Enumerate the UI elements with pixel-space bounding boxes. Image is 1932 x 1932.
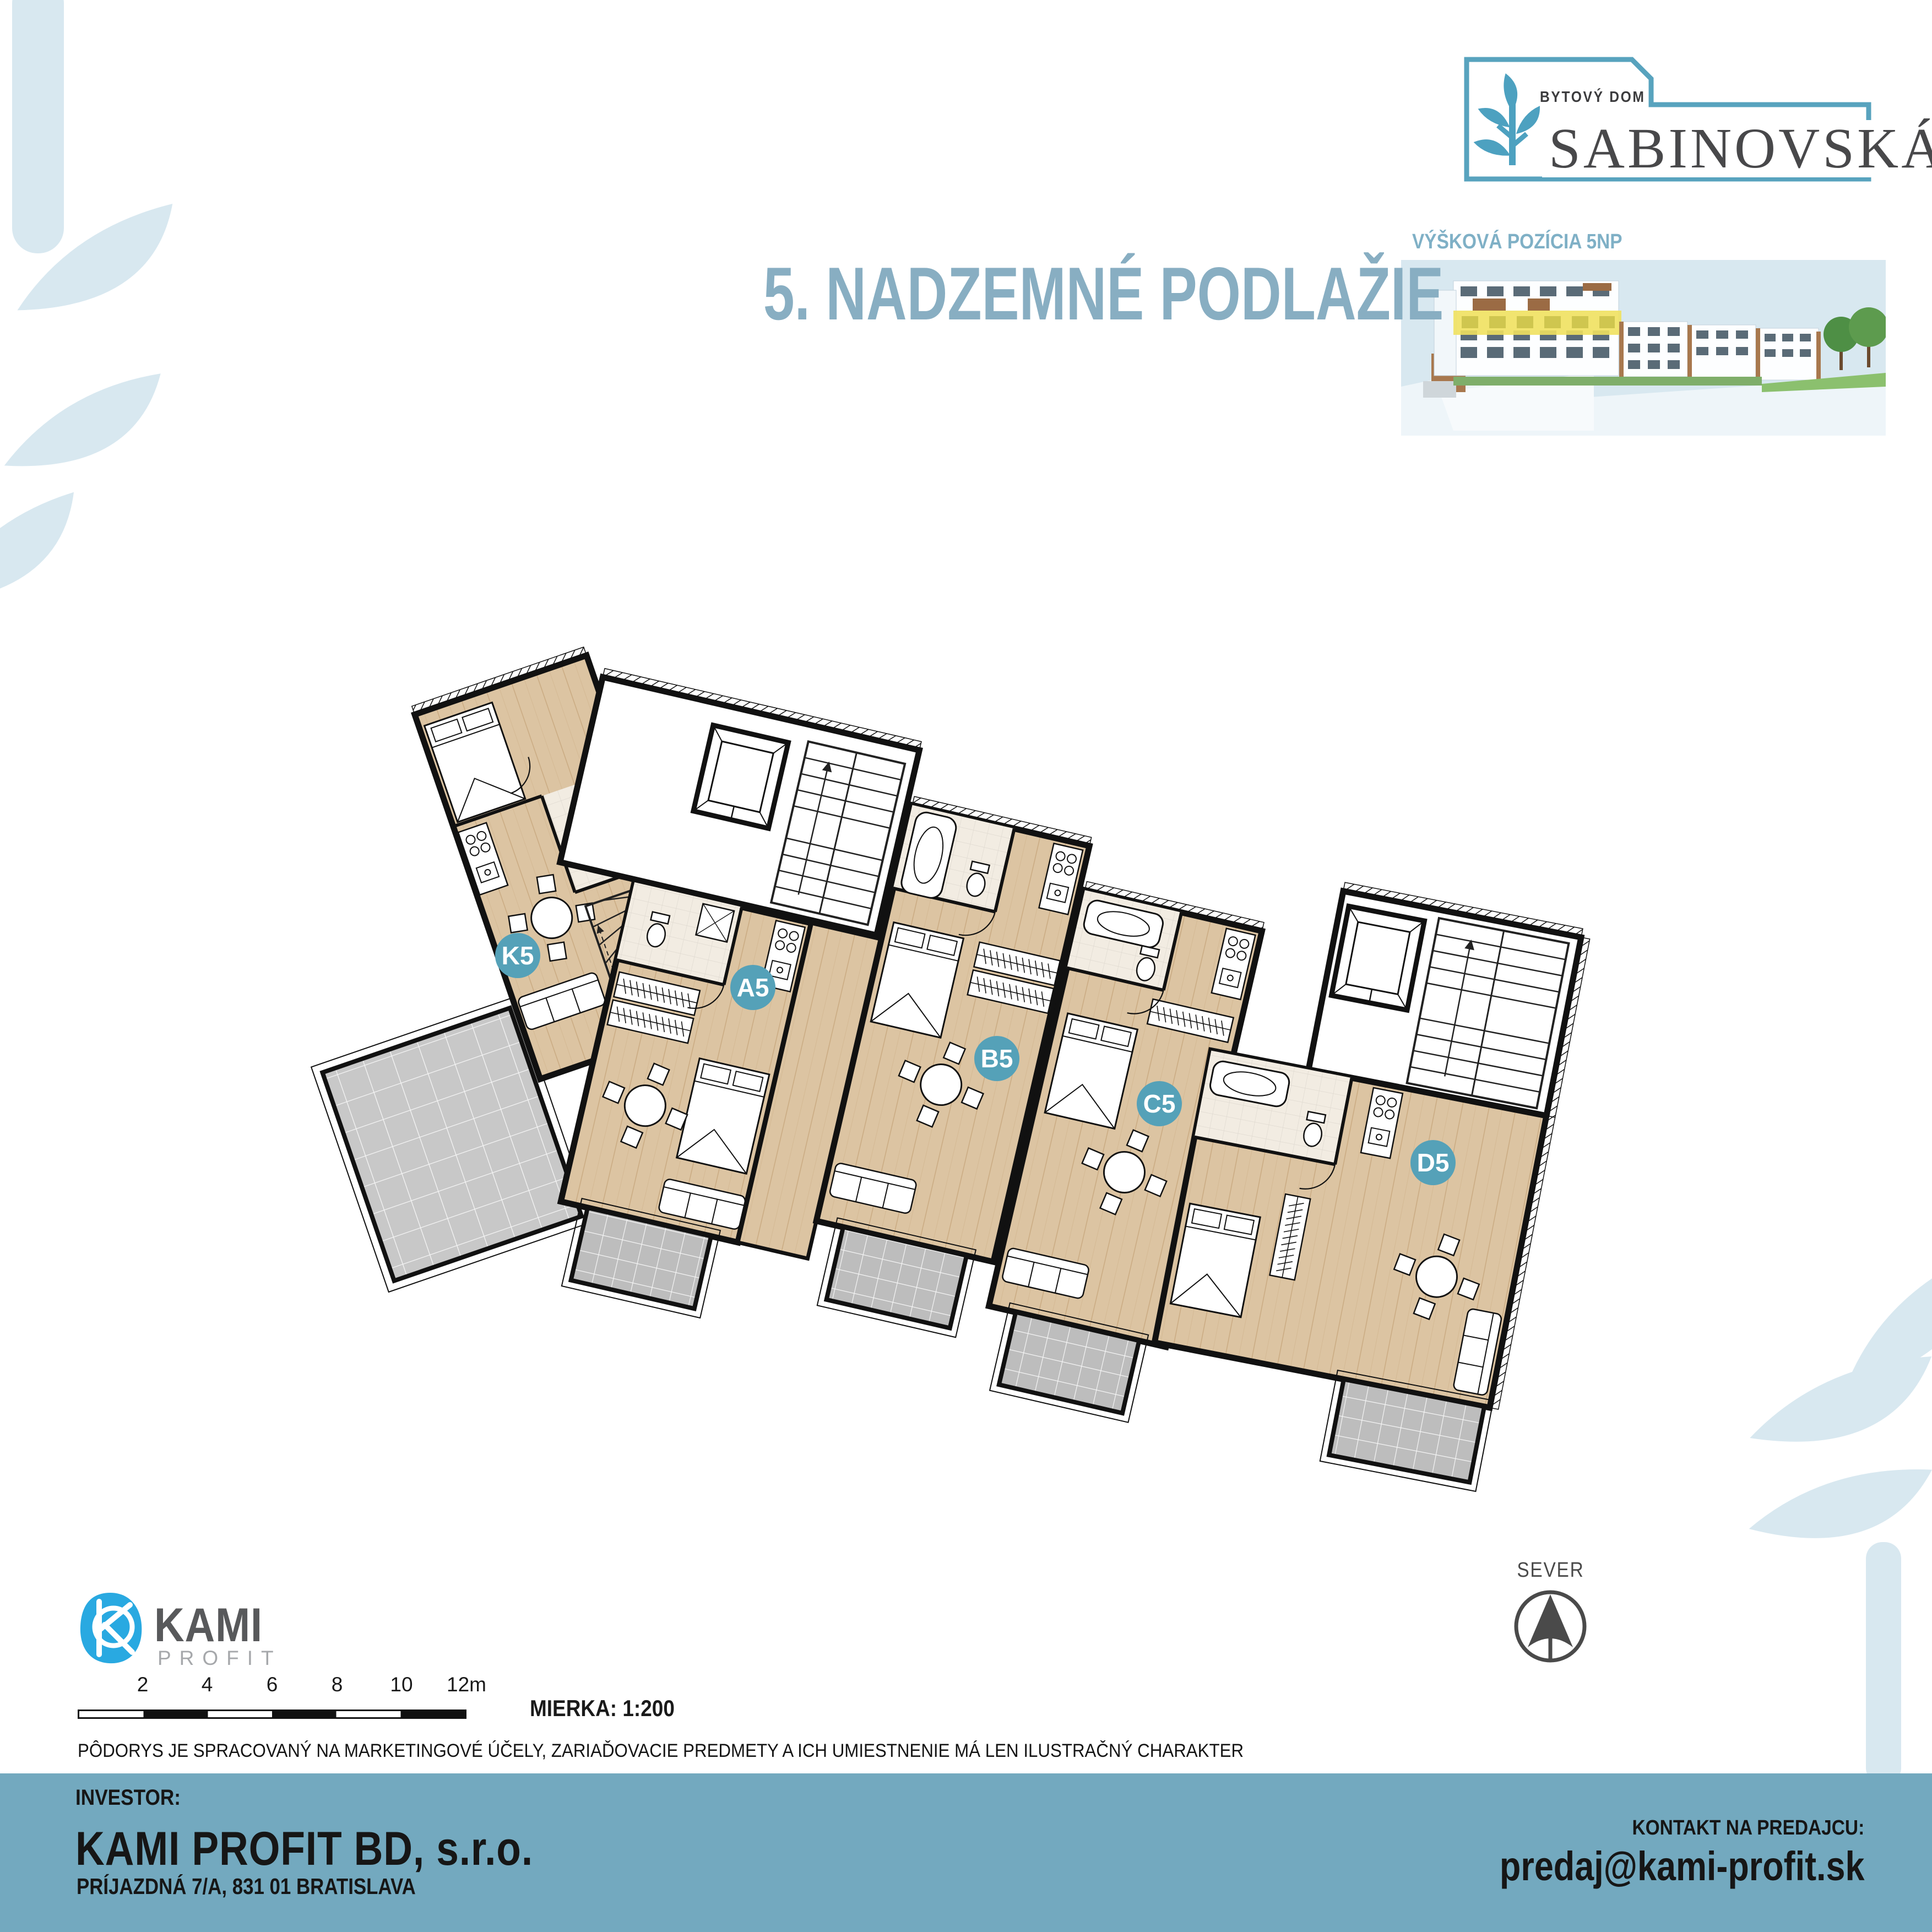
contact-email[interactable]: predaj@kami-profit.sk [1435,1843,1864,1890]
scale-tick: 8 [312,1673,362,1696]
scale-label-text: MIERKA: 1:200 [530,1695,675,1722]
north-label-text: SEVER [1517,1559,1584,1582]
scale-tick: 10 [377,1673,426,1696]
apartment-badge-b5[interactable]: B5 [974,1036,1019,1081]
investor-label: INVESTOR: [75,1786,195,1810]
disclaimer: PÔDORYS JE SPRACOVANÝ NA MARKETINGOVÉ ÚČ… [78,1740,1345,1762]
scale-tick: 4 [182,1673,232,1696]
apartment-badge-k5-label: K5 [502,941,534,970]
footer-bar: INVESTOR: KAMI PROFIT BD, s.r.o. PRÍJAZD… [0,1773,1932,1932]
elevator-icon [693,725,788,828]
investor-address: PRÍJAZDNÁ 7/A, 831 01 BRATISLAVA [77,1874,476,1900]
elevator-icon [1331,906,1424,1010]
apartment-badge-k5[interactable]: K5 [495,933,540,978]
vendor-name: KAMI [154,1598,278,1653]
kami-profit-icon [76,1591,148,1668]
contact-label: KONTAKT NA PREDAJCU: [1600,1816,1864,1840]
scale-label: MIERKA: 1:200 [530,1695,694,1722]
scale-tick: 6 [247,1673,297,1696]
apartment-badge-a5-label: A5 [737,973,769,1002]
scale-bar-segments [78,1710,466,1719]
vendor-logo: KAMI PROFIT [76,1591,384,1679]
investor-name-text: KAMI PROFIT BD, s.r.o. [75,1822,533,1876]
disclaimer-text: PÔDORYS JE SPRACOVANÝ NA MARKETINGOVÉ ÚČ… [78,1740,1244,1762]
scale-tick: 2 [118,1673,167,1696]
apartment-badge-c5[interactable]: C5 [1137,1081,1182,1126]
apartment-unit-d5 [1138,1051,1555,1493]
contact-email-text: predaj@kami-profit.sk [1499,1843,1864,1890]
scale-bar: 2 4 6 8 10 12m [78,1673,573,1723]
vendor-subtitle: PROFIT [158,1647,282,1670]
vendor-subtitle-text: PROFIT [158,1647,282,1669]
investor-name: KAMI PROFIT BD, s.r.o. [75,1822,614,1876]
apartment-badge-c5-label: C5 [1143,1089,1176,1118]
investor-label-text: INVESTOR: [75,1786,181,1810]
scale-tick: 12m [442,1673,491,1696]
north-arrow-icon [1481,1582,1619,1670]
apartment-badge-b5-label: B5 [981,1044,1013,1073]
vendor-name-text: KAMI [154,1598,263,1653]
apartment-badge-a5[interactable]: A5 [730,965,775,1010]
investor-address-text: PRÍJAZDNÁ 7/A, 831 01 BRATISLAVA [77,1874,416,1900]
apartment-badge-d5-label: D5 [1417,1148,1450,1177]
apartment-badge-d5[interactable]: D5 [1410,1140,1456,1185]
north-indicator: SEVER [1481,1559,1619,1670]
north-label: SEVER [1481,1559,1619,1582]
contact-label-text: KONTAKT NA PREDAJCU: [1632,1816,1864,1840]
page: BYTOVÝ DOM SABINOVSKÁ VÝŠKOVÁ POZÍCIA 5N… [0,0,1932,1932]
